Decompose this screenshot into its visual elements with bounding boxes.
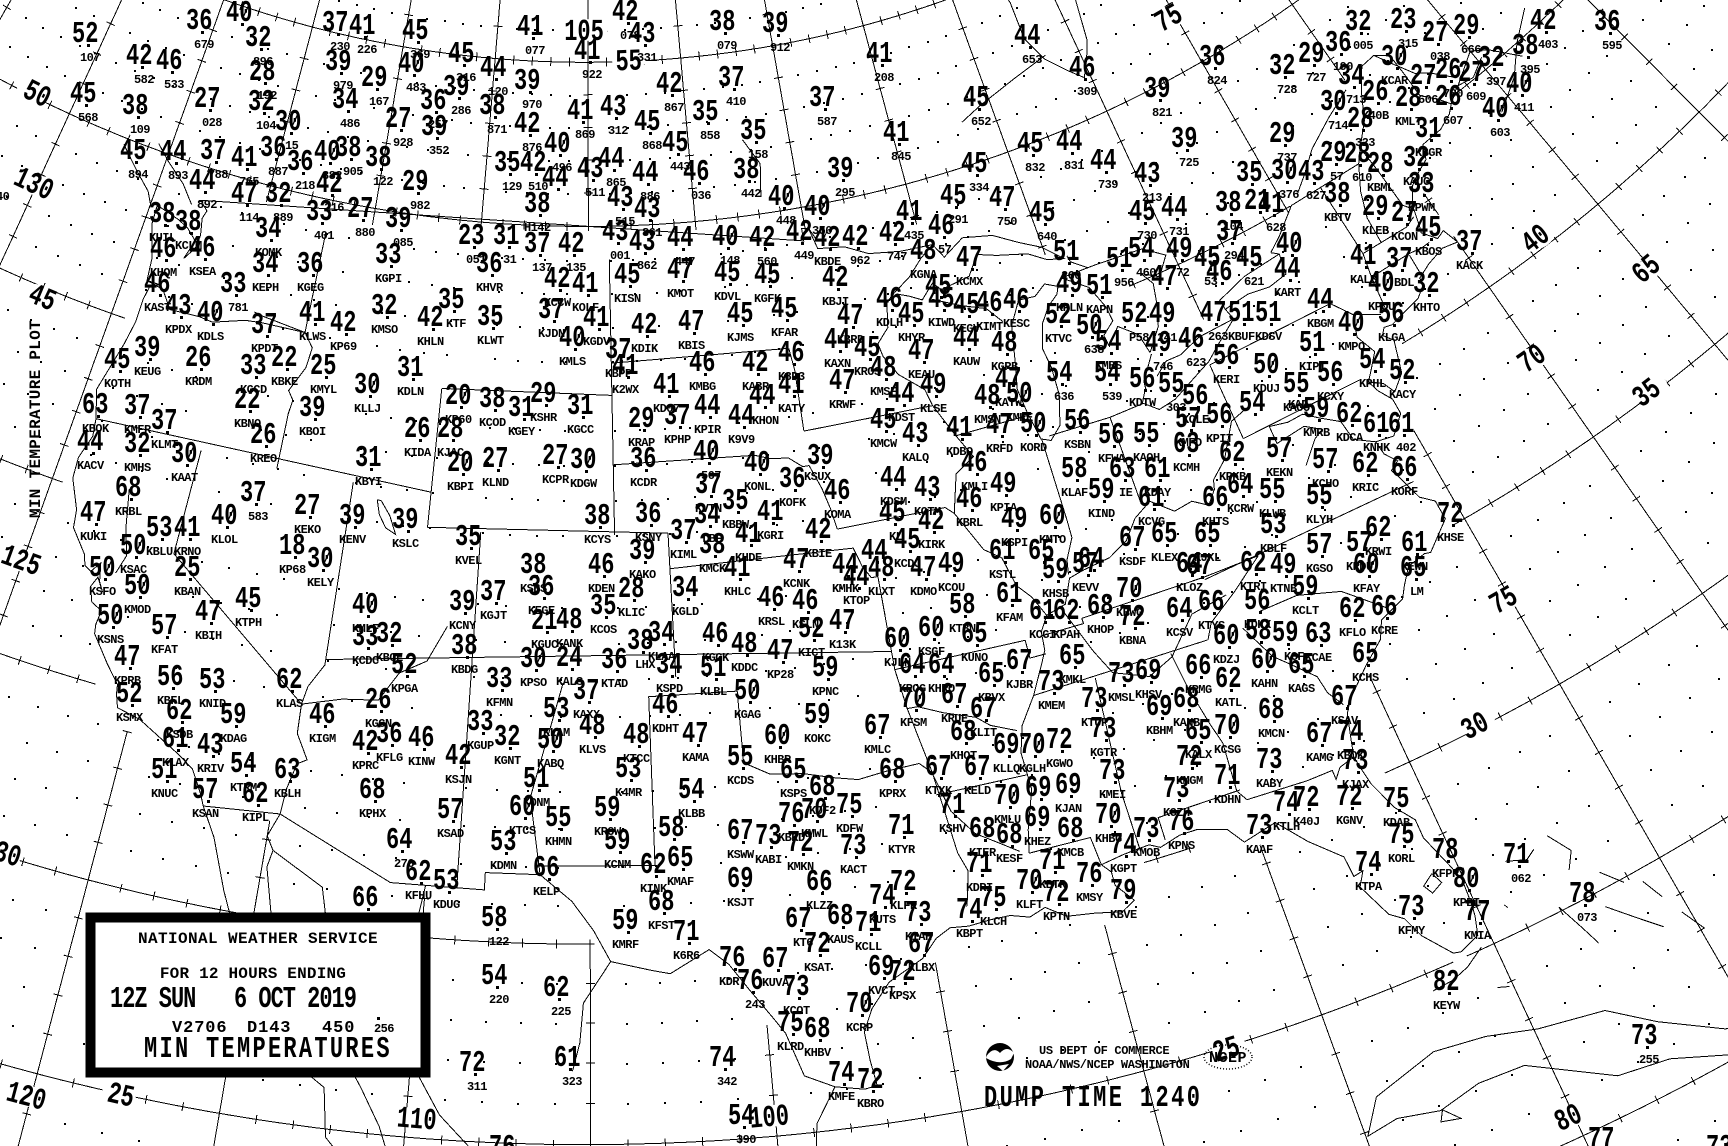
svg-text:US DEPT OF COMMERCE: US DEPT OF COMMERCE: [1039, 1044, 1169, 1058]
svg-text:65: 65: [1352, 638, 1378, 672]
svg-text:KLAF: KLAF: [1061, 486, 1088, 500]
svg-text:331: 331: [637, 51, 657, 65]
svg-text:KGZH: KGZH: [1163, 806, 1190, 820]
svg-text:867: 867: [664, 101, 684, 115]
svg-text:42: 42: [631, 309, 657, 343]
svg-text:38: 38: [365, 142, 391, 176]
svg-text:KBOI: KBOI: [299, 425, 326, 439]
svg-text:72: 72: [1437, 498, 1463, 532]
svg-text:KMSY: KMSY: [1076, 891, 1104, 905]
svg-text:23: 23: [1390, 4, 1416, 38]
svg-text:75: 75: [1383, 783, 1409, 817]
svg-text:073: 073: [1577, 911, 1597, 925]
svg-text:40: 40: [197, 297, 223, 331]
svg-text:57: 57: [1306, 529, 1332, 563]
svg-text:75: 75: [836, 789, 862, 823]
svg-text:74: 74: [956, 894, 982, 928]
svg-text:K13K: K13K: [829, 638, 857, 652]
svg-text:67: 67: [1331, 681, 1357, 715]
svg-text:72: 72: [1046, 724, 1072, 758]
svg-text:65: 65: [961, 618, 987, 652]
svg-text:42: 42: [814, 222, 840, 256]
svg-text:KISN: KISN: [614, 292, 641, 306]
svg-text:56: 56: [1064, 405, 1090, 439]
svg-text:KUKI: KUKI: [80, 530, 107, 544]
svg-text:59: 59: [220, 699, 246, 733]
svg-text:KSFO: KSFO: [89, 585, 116, 599]
svg-text:65: 65: [667, 842, 693, 876]
svg-text:68: 68: [359, 774, 385, 808]
svg-text:KAHN: KAHN: [1251, 677, 1278, 691]
svg-text:26: 26: [365, 684, 391, 718]
svg-text:KJBR: KJBR: [1006, 678, 1034, 692]
svg-text:912: 912: [770, 41, 790, 55]
svg-text:41: 41: [583, 302, 609, 336]
svg-text:47: 47: [989, 182, 1015, 216]
svg-text:KLND: KLND: [482, 476, 509, 490]
svg-text:32: 32: [245, 22, 271, 56]
svg-text:37: 37: [124, 390, 150, 424]
svg-text:40: 40: [0, 190, 10, 204]
svg-text:LM: LM: [1410, 585, 1424, 599]
svg-text:48: 48: [579, 710, 605, 744]
svg-text:34: 34: [648, 617, 674, 651]
svg-text:43: 43: [165, 290, 191, 324]
svg-text:KMCK: KMCK: [699, 562, 727, 576]
svg-text:71: 71: [1039, 845, 1065, 879]
svg-text:54: 54: [1239, 387, 1265, 421]
svg-text:32: 32: [248, 86, 274, 120]
svg-text:42: 42: [445, 740, 471, 774]
svg-text:KAUW: KAUW: [953, 355, 981, 369]
svg-text:36: 36: [601, 644, 627, 678]
svg-text:47: 47: [1200, 297, 1226, 331]
svg-text:54: 54: [1359, 344, 1385, 378]
svg-text:51: 51: [1228, 297, 1254, 331]
svg-text:KGEY: KGEY: [508, 425, 536, 439]
svg-text:52: 52: [1389, 355, 1415, 389]
svg-text:KLLJ: KLLJ: [354, 402, 381, 416]
svg-text:218: 218: [295, 179, 315, 193]
svg-text:KLCH: KLCH: [980, 915, 1007, 929]
svg-text:KLIC: KLIC: [618, 606, 645, 620]
svg-text:44: 44: [843, 561, 869, 595]
svg-text:57: 57: [1266, 433, 1292, 467]
svg-text:66: 66: [1198, 586, 1224, 620]
svg-text:72: 72: [1119, 601, 1145, 635]
svg-text:49: 49: [920, 369, 946, 403]
svg-text:KBYI: KBYI: [355, 475, 382, 489]
svg-text:35: 35: [494, 147, 520, 181]
svg-text:41: 41: [653, 369, 679, 403]
svg-text:28: 28: [618, 573, 644, 607]
svg-text:411: 411: [1514, 101, 1534, 115]
svg-text:45: 45: [754, 259, 780, 293]
svg-text:38: 38: [451, 630, 477, 664]
svg-text:6 OCT 2019: 6 OCT 2019: [234, 983, 356, 1017]
svg-text:73: 73: [1090, 713, 1116, 747]
svg-text:67: 67: [925, 751, 951, 785]
svg-text:29: 29: [628, 403, 654, 437]
svg-text:50: 50: [97, 600, 123, 634]
svg-text:KACK: KACK: [1456, 259, 1484, 273]
svg-text:64: 64: [1176, 548, 1202, 582]
svg-text:KLFT: KLFT: [1016, 898, 1043, 912]
svg-text:KMOT: KMOT: [667, 287, 694, 301]
svg-text:43: 43: [629, 18, 655, 52]
svg-text:24: 24: [556, 642, 582, 676]
svg-text:68: 68: [648, 886, 674, 920]
svg-text:56: 56: [1098, 419, 1124, 453]
svg-text:42: 42: [330, 307, 356, 341]
svg-text:61: 61: [1363, 408, 1389, 442]
svg-text:27: 27: [294, 490, 320, 524]
svg-text:KRBL: KRBL: [115, 505, 142, 519]
svg-text:36: 36: [376, 718, 402, 752]
svg-text:KORD: KORD: [1020, 441, 1047, 455]
svg-text:73: 73: [1099, 755, 1125, 789]
svg-text:59: 59: [812, 652, 838, 686]
svg-text:52: 52: [1045, 299, 1071, 333]
svg-text:832: 832: [1025, 161, 1045, 175]
svg-text:37: 37: [670, 515, 696, 549]
svg-text:53: 53: [146, 512, 172, 546]
svg-text:714: 714: [1328, 119, 1348, 133]
svg-text:34: 34: [656, 649, 682, 683]
svg-text:KPGA: KPGA: [391, 682, 419, 696]
svg-text:41: 41: [572, 268, 598, 302]
svg-text:KAUS: KAUS: [827, 933, 854, 947]
svg-text:45: 45: [771, 293, 797, 327]
svg-text:NATIONAL WEATHER SERVICE: NATIONAL WEATHER SERVICE: [138, 930, 378, 948]
svg-text:028: 028: [202, 116, 222, 130]
svg-text:40: 40: [693, 436, 719, 470]
svg-text:34: 34: [252, 248, 278, 282]
svg-text:74: 74: [709, 1042, 735, 1076]
svg-text:352: 352: [429, 144, 449, 158]
svg-text:58: 58: [1245, 615, 1271, 649]
svg-text:30: 30: [354, 369, 380, 403]
svg-text:36: 36: [297, 248, 323, 282]
svg-text:68: 68: [996, 819, 1022, 853]
svg-text:33: 33: [306, 196, 332, 230]
svg-text:45: 45: [104, 344, 130, 378]
svg-text:38: 38: [335, 132, 361, 166]
svg-text:KORL: KORL: [1388, 852, 1415, 866]
svg-text:831: 831: [1064, 159, 1084, 173]
svg-text:38: 38: [149, 198, 175, 232]
svg-text:KIND: KIND: [1088, 507, 1115, 521]
svg-text:37: 37: [240, 477, 266, 511]
svg-text:72: 72: [1336, 781, 1362, 815]
svg-text:77: 77: [1464, 896, 1490, 930]
svg-text:342: 342: [717, 1075, 737, 1089]
svg-text:KCSG: KCSG: [1214, 743, 1241, 757]
svg-text:KPNS: KPNS: [1168, 839, 1195, 853]
svg-text:KOKC: KOKC: [804, 732, 831, 746]
svg-text:36: 36: [779, 463, 805, 497]
svg-text:49: 49: [1001, 503, 1027, 537]
svg-text:603: 603: [1490, 126, 1510, 140]
svg-text:KBHM: KBHM: [1146, 724, 1173, 738]
svg-text:59: 59: [804, 699, 830, 733]
svg-text:70: 70: [1019, 729, 1045, 763]
svg-text:KLVS: KLVS: [579, 743, 606, 757]
svg-text:KFHU: KFHU: [405, 889, 432, 903]
svg-text:42: 42: [842, 221, 868, 255]
svg-text:43: 43: [1298, 156, 1324, 190]
svg-text:67: 67: [964, 751, 990, 785]
svg-text:30: 30: [171, 438, 197, 472]
svg-text:37: 37: [322, 7, 348, 41]
svg-text:60: 60: [764, 720, 790, 754]
svg-text:KCYS: KCYS: [584, 533, 611, 547]
svg-text:68: 68: [879, 754, 905, 788]
svg-text:MIN TEMPERATURES: MIN TEMPERATURES: [144, 1033, 392, 1067]
svg-text:39: 39: [325, 46, 351, 80]
svg-text:40: 40: [1338, 307, 1364, 341]
svg-text:27: 27: [482, 443, 508, 477]
svg-text:22: 22: [271, 342, 297, 376]
svg-text:44: 44: [880, 462, 906, 496]
svg-text:27: 27: [347, 193, 373, 227]
svg-text:KFMY: KFMY: [1398, 924, 1426, 938]
svg-text:48: 48: [868, 552, 894, 586]
svg-text:38: 38: [479, 90, 505, 124]
svg-text:45: 45: [963, 82, 989, 116]
svg-text:KDSV: KDSV: [1255, 330, 1283, 344]
svg-text:KCRP: KCRP: [846, 1021, 873, 1035]
svg-text:403: 403: [1538, 38, 1558, 52]
svg-text:32: 32: [1269, 50, 1295, 84]
svg-text:45: 45: [928, 283, 954, 317]
svg-text:220: 220: [489, 993, 509, 1007]
svg-text:46: 46: [961, 447, 987, 481]
svg-text:42: 42: [514, 108, 540, 142]
svg-text:38: 38: [699, 529, 725, 563]
svg-text:62: 62: [1240, 547, 1266, 581]
svg-text:59: 59: [1292, 571, 1318, 605]
svg-text:73: 73: [1631, 1020, 1657, 1054]
svg-text:46: 46: [1069, 52, 1095, 86]
svg-text:KP28: KP28: [767, 668, 794, 682]
svg-text:30: 30: [1381, 41, 1407, 75]
svg-text:37: 37: [151, 405, 177, 439]
svg-text:60: 60: [509, 791, 535, 825]
svg-text:KDLN: KDLN: [397, 385, 424, 399]
svg-text:KREO: KREO: [250, 452, 277, 466]
svg-text:39: 39: [392, 504, 418, 538]
svg-text:54: 54: [481, 960, 507, 994]
svg-text:49: 49: [1056, 268, 1082, 302]
svg-text:568: 568: [78, 111, 98, 125]
svg-text:KBIH: KBIH: [195, 629, 222, 643]
svg-text:KBLH: KBLH: [274, 787, 301, 801]
svg-text:66: 66: [352, 882, 378, 916]
svg-text:30: 30: [1320, 86, 1346, 120]
svg-text:27: 27: [385, 103, 411, 137]
svg-text:40: 40: [398, 48, 424, 82]
svg-text:871: 871: [487, 123, 507, 137]
svg-text:69: 69: [727, 863, 753, 897]
svg-text:KLRD: KLRD: [777, 1040, 804, 1054]
svg-text:42: 42: [126, 40, 152, 74]
svg-text:KFST: KFST: [648, 919, 675, 933]
svg-text:KHOP: KHOP: [1087, 623, 1114, 637]
svg-text:30: 30: [307, 543, 333, 577]
svg-text:KCLT: KCLT: [1292, 604, 1319, 618]
svg-text:75: 75: [777, 1007, 803, 1041]
svg-text:MIN TEMPERATURE PLOT: MIN TEMPERATURE PLOT: [27, 320, 45, 518]
svg-text:KDHN: KDHN: [1214, 793, 1241, 807]
svg-text:35: 35: [438, 284, 464, 318]
svg-text:56: 56: [157, 661, 183, 695]
svg-text:45: 45: [727, 298, 753, 332]
svg-text:62: 62: [543, 972, 569, 1006]
svg-text:KLAS: KLAS: [276, 697, 303, 711]
svg-text:55: 55: [727, 741, 753, 775]
svg-text:KDUG: KDUG: [433, 898, 460, 912]
svg-text:44: 44: [598, 143, 624, 177]
svg-text:57: 57: [437, 794, 463, 828]
svg-text:225: 225: [551, 1005, 571, 1019]
svg-text:34: 34: [332, 84, 358, 118]
svg-text:80: 80: [1453, 863, 1479, 897]
svg-text:KGPI: KGPI: [375, 272, 402, 286]
svg-text:NCEP: NCEP: [1209, 1050, 1247, 1067]
svg-text:54: 54: [1046, 357, 1072, 391]
svg-text:63: 63: [274, 754, 300, 788]
svg-text:KMFE: KMFE: [828, 1090, 855, 1104]
svg-text:72: 72: [1176, 741, 1202, 775]
svg-text:37: 37: [718, 62, 744, 96]
svg-text:KFAT: KFAT: [151, 643, 178, 657]
svg-text:43: 43: [602, 216, 628, 250]
svg-text:41: 41: [349, 10, 375, 44]
svg-text:70: 70: [801, 794, 827, 828]
svg-text:KSJN: KSJN: [445, 773, 472, 787]
svg-text:54: 54: [728, 1100, 754, 1134]
svg-text:68: 68: [115, 472, 141, 506]
svg-text:46: 46: [683, 156, 709, 190]
svg-text:32: 32: [1413, 268, 1439, 302]
svg-text:51: 51: [151, 754, 177, 788]
svg-text:50: 50: [124, 570, 150, 604]
svg-text:KHSE: KHSE: [1437, 531, 1464, 545]
svg-text:43: 43: [902, 418, 928, 452]
svg-text:53: 53: [543, 693, 569, 727]
svg-text:KELY: KELY: [307, 576, 335, 590]
svg-text:623: 623: [1186, 356, 1206, 370]
svg-text:KBDG: KBDG: [451, 663, 478, 677]
svg-text:KRWF: KRWF: [829, 398, 856, 412]
svg-text:KRFD: KRFD: [986, 442, 1013, 456]
svg-text:KPTN: KPTN: [1043, 910, 1070, 924]
svg-text:962: 962: [850, 254, 870, 268]
svg-text:KMOB: KMOB: [1133, 846, 1160, 860]
svg-text:295: 295: [835, 186, 855, 200]
svg-text:60: 60: [918, 612, 944, 646]
svg-text:KDGW: KDGW: [570, 477, 598, 491]
svg-text:47: 47: [910, 552, 936, 586]
svg-text:45: 45: [870, 404, 896, 438]
svg-text:KP68: KP68: [279, 563, 306, 577]
svg-text:45: 45: [402, 15, 428, 49]
svg-text:68: 68: [1057, 813, 1083, 847]
svg-text:KSWW: KSWW: [727, 848, 755, 862]
svg-text:43: 43: [914, 472, 940, 506]
svg-text:53: 53: [1260, 509, 1286, 543]
svg-text:77: 77: [1588, 1123, 1614, 1146]
svg-text:28: 28: [1367, 148, 1393, 182]
svg-text:40: 40: [352, 589, 378, 623]
svg-text:42: 42: [918, 505, 944, 539]
svg-text:42: 42: [656, 68, 682, 102]
svg-text:32: 32: [265, 178, 291, 212]
svg-text:76: 76: [489, 1131, 515, 1146]
svg-text:45: 45: [1017, 128, 1043, 162]
svg-text:40: 40: [211, 500, 237, 534]
svg-text:55: 55: [1133, 418, 1159, 452]
svg-text:KMCN: KMCN: [1258, 727, 1285, 741]
svg-text:449: 449: [794, 249, 814, 263]
svg-text:42: 42: [544, 263, 570, 297]
svg-text:129: 129: [502, 180, 522, 194]
svg-text:68: 68: [1258, 694, 1284, 728]
svg-text:36: 36: [635, 498, 661, 532]
svg-text:KELD: KELD: [964, 784, 991, 798]
svg-text:40: 40: [544, 128, 570, 162]
svg-text:39: 39: [514, 65, 540, 99]
svg-text:KHSB: KHSB: [1042, 587, 1069, 601]
svg-text:72: 72: [787, 827, 813, 861]
svg-text:KCNM: KCNM: [604, 858, 631, 872]
svg-text:33: 33: [352, 621, 378, 655]
svg-text:74: 74: [1355, 847, 1381, 881]
svg-text:46: 46: [156, 45, 182, 79]
svg-text:KMCW: KMCW: [870, 437, 898, 451]
svg-text:47: 47: [986, 409, 1012, 443]
svg-text:37: 37: [809, 82, 835, 116]
svg-text:57: 57: [1072, 548, 1098, 582]
svg-text:44: 44: [694, 390, 720, 424]
svg-text:56: 56: [1378, 298, 1404, 332]
svg-text:37: 37: [480, 576, 506, 610]
svg-text:KLEB: KLEB: [1362, 224, 1389, 238]
svg-text:33: 33: [467, 706, 493, 740]
svg-text:31: 31: [567, 390, 593, 424]
svg-text:K9V9: K9V9: [728, 433, 755, 447]
svg-text:45: 45: [120, 135, 146, 169]
svg-text:KACY: KACY: [1389, 388, 1417, 402]
svg-text:21: 21: [531, 605, 557, 639]
svg-text:KMRB: KMRB: [1303, 426, 1330, 440]
svg-text:61: 61: [989, 535, 1015, 569]
svg-text:511: 511: [585, 186, 605, 200]
svg-text:39: 39: [762, 8, 788, 42]
svg-text:122: 122: [489, 935, 509, 949]
svg-text:312: 312: [608, 124, 628, 138]
svg-text:KCRE: KCRE: [1371, 624, 1398, 638]
svg-text:52: 52: [391, 649, 417, 683]
svg-text:KCDR: KCDR: [630, 476, 658, 490]
svg-text:894: 894: [128, 168, 148, 182]
svg-text:KPHL: KPHL: [1359, 377, 1386, 391]
svg-text:KDHT: KDHT: [652, 722, 679, 736]
svg-text:KMRF: KMRF: [612, 938, 639, 952]
svg-text:71: 71: [939, 789, 965, 823]
svg-text:59: 59: [1042, 554, 1068, 588]
